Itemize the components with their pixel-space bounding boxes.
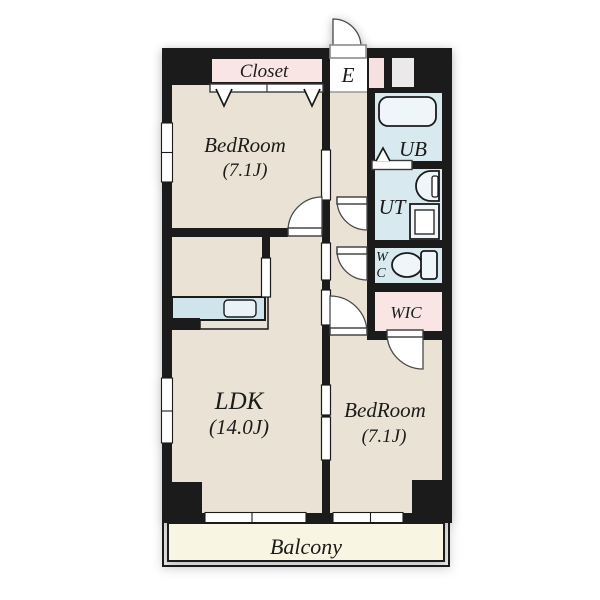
floor-plan-drawing: Closet E BedRoom (7.1J) UB UT W C WIC LD… — [162, 19, 453, 566]
closet-label: Closet — [240, 61, 289, 82]
partition-corridor-ldk-a — [322, 243, 331, 280]
wall-wic-bottom-b — [423, 331, 442, 340]
entrance-door-leaf — [330, 45, 366, 58]
wall-left-b — [162, 182, 172, 378]
entrance-label: E — [341, 63, 355, 87]
floor-plan: Closet E BedRoom (7.1J) UB UT W C WIC LD… — [0, 0, 600, 600]
corridor-door-leaf — [330, 328, 367, 335]
wall-kitchen-stub — [262, 233, 270, 258]
wall-top — [212, 48, 330, 58]
wall-ut-wc — [367, 240, 442, 248]
floor-plan-page: Closet E BedRoom (7.1J) UB UT W C WIC LD… — [0, 0, 600, 600]
wic-label: WIC — [390, 303, 422, 322]
window-bedroom2-balcony — [333, 513, 403, 524]
washing-machine-drum — [415, 210, 434, 234]
wall-bottom-a — [162, 513, 205, 523]
window-ldk-balcony — [205, 513, 306, 524]
unit-bath-label: UB — [399, 137, 427, 161]
bedroom2-door-leaf — [387, 330, 423, 337]
bedroom2-size: (7.1J) — [362, 426, 407, 447]
wc-label-line2: C — [376, 266, 386, 281]
partition-kitchen — [262, 258, 271, 297]
wall-wc-wic — [367, 283, 442, 292]
wall-corridor-right — [367, 93, 375, 340]
partition-ldk-bedroom2-b — [322, 417, 331, 460]
meter-box-icon — [392, 58, 414, 87]
wall-bottom-b — [306, 513, 333, 523]
bedroom1-label: BedRoom — [204, 133, 286, 157]
partition-corridor-ldk-b — [322, 290, 331, 325]
ldk-size: (14.0J) — [209, 415, 269, 439]
unit-bath-folding-door — [372, 161, 412, 170]
shoe-box-icon — [369, 58, 384, 88]
utility-door-leaf — [337, 197, 367, 204]
wall-kitchen-bottom-stub — [162, 318, 200, 330]
toilet-icon — [392, 253, 422, 277]
wc-door-leaf — [337, 247, 367, 254]
wall-right — [442, 93, 452, 523]
bathtub-icon — [379, 97, 436, 126]
balcony-label: Balcony — [270, 534, 342, 559]
toilet-tank — [421, 251, 437, 279]
wc-label-line1: W — [376, 250, 389, 265]
washbasin-faucet — [432, 176, 438, 197]
ldk-label: LDK — [214, 388, 265, 415]
kitchen-sink-icon — [224, 300, 256, 317]
wall-wic-bottom-a — [367, 331, 387, 340]
partition-ldk-bedroom2-a — [322, 385, 331, 415]
bedroom1-door-leaf — [288, 228, 322, 236]
bedroom2-label: BedRoom — [344, 398, 426, 422]
partition-corridor-bedroom1 — [322, 150, 331, 200]
entrance-door-swing — [333, 19, 361, 47]
bedroom1-size: (7.1J) — [223, 160, 268, 181]
utility-label: UT — [379, 195, 407, 219]
wall-bottom-c — [403, 513, 452, 523]
wall-left-a — [162, 58, 172, 123]
